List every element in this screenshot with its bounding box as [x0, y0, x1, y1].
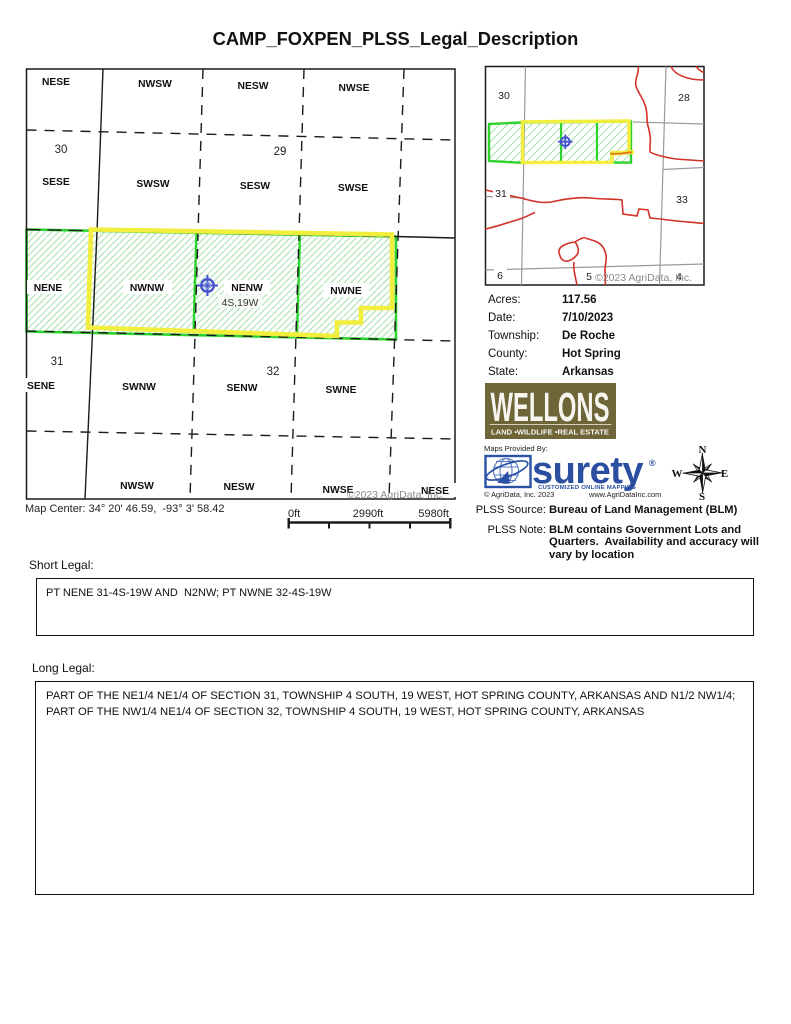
svg-text:SWSE: SWSE [338, 183, 368, 194]
svg-text:®: ® [649, 458, 656, 468]
svg-text:NENW: NENW [231, 283, 263, 294]
svg-text:SESE: SESE [42, 177, 70, 188]
svg-text:NWSE: NWSE [339, 83, 370, 94]
svg-text:6: 6 [497, 270, 503, 282]
svg-text:0ft: 0ft [288, 508, 300, 520]
svg-text:©2023 AgriData, Inc.: ©2023 AgriData, Inc. [347, 489, 444, 501]
svg-text:N: N [699, 444, 707, 456]
svg-text:31: 31 [51, 356, 64, 368]
svg-text:SENE: SENE [27, 381, 55, 392]
svg-text:NWSW: NWSW [120, 481, 154, 492]
svg-text:S: S [699, 491, 705, 503]
svg-text:SWNE: SWNE [326, 385, 357, 396]
svg-text:NESE: NESE [42, 77, 70, 88]
svg-text:33: 33 [676, 194, 688, 206]
svg-text:29: 29 [274, 146, 287, 158]
svg-text:NWNE: NWNE [330, 286, 362, 297]
svg-text:28: 28 [678, 92, 690, 104]
svg-text:30: 30 [55, 144, 68, 156]
svg-text:NESW: NESW [224, 482, 255, 493]
svg-text:SWSW: SWSW [136, 179, 169, 190]
svg-text:NWSW: NWSW [138, 79, 172, 90]
svg-text:4S,19W: 4S,19W [222, 298, 259, 309]
svg-text:LAND ▪WILDLIFE ▪REAL ESTATE: LAND ▪WILDLIFE ▪REAL ESTATE [491, 428, 609, 437]
svg-text:NESW: NESW [238, 81, 269, 92]
svg-text:WELLONS: WELLONS [491, 384, 610, 430]
svg-text:©2023 AgriData, Inc.: ©2023 AgriData, Inc. [595, 272, 692, 284]
svg-text:5: 5 [586, 271, 592, 283]
svg-text:NENE: NENE [34, 283, 63, 294]
svg-text:SWNW: SWNW [122, 382, 156, 393]
svg-text:W: W [672, 468, 683, 480]
svg-text:30: 30 [498, 90, 510, 102]
svg-text:NWNW: NWNW [130, 283, 165, 294]
svg-text:E: E [721, 468, 728, 480]
svg-text:2990ft: 2990ft [353, 508, 384, 520]
svg-text:SENW: SENW [227, 383, 258, 394]
svg-text:32: 32 [267, 366, 280, 378]
svg-text:SESW: SESW [240, 181, 271, 192]
svg-text:31: 31 [495, 188, 507, 200]
